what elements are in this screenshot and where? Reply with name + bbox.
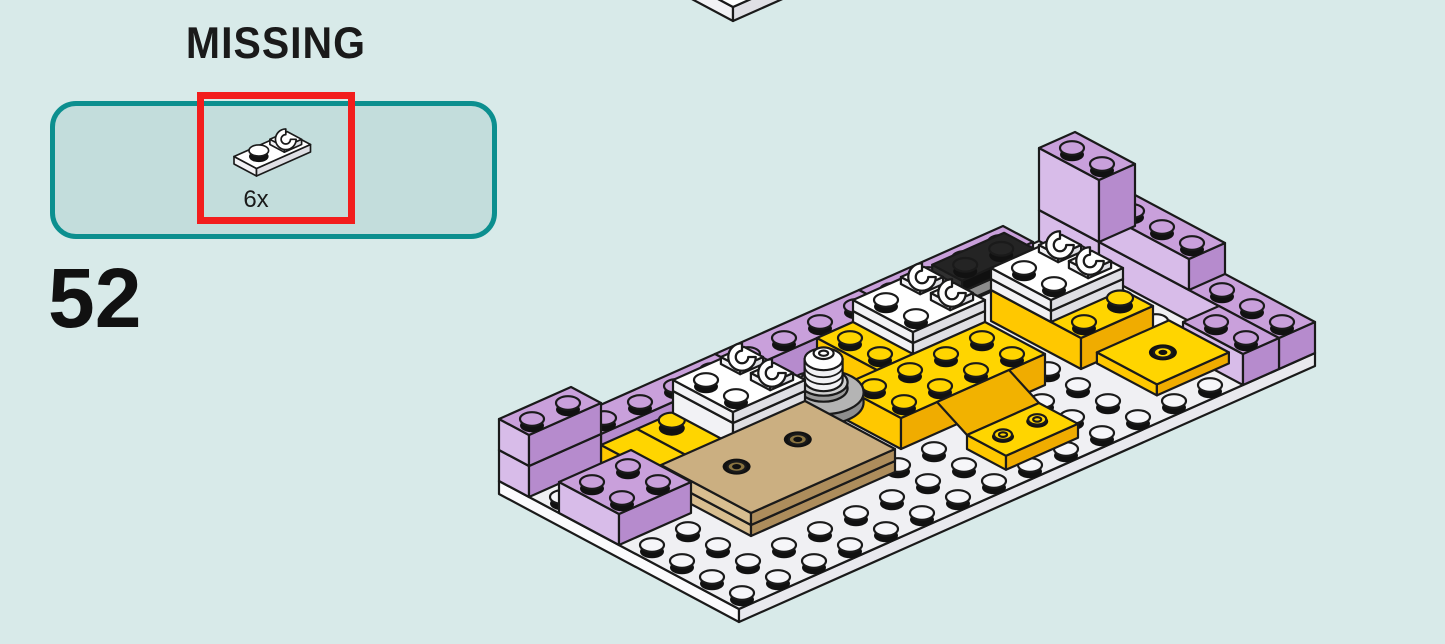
instruction-page: MISSING 6x 52 (0, 0, 1445, 644)
partial-assembly (673, 0, 805, 21)
main-assembly (499, 132, 1315, 622)
step-number: 52 (48, 250, 141, 347)
part-quantity-label: 6x (196, 186, 316, 214)
missing-title: MISSING (156, 18, 396, 69)
